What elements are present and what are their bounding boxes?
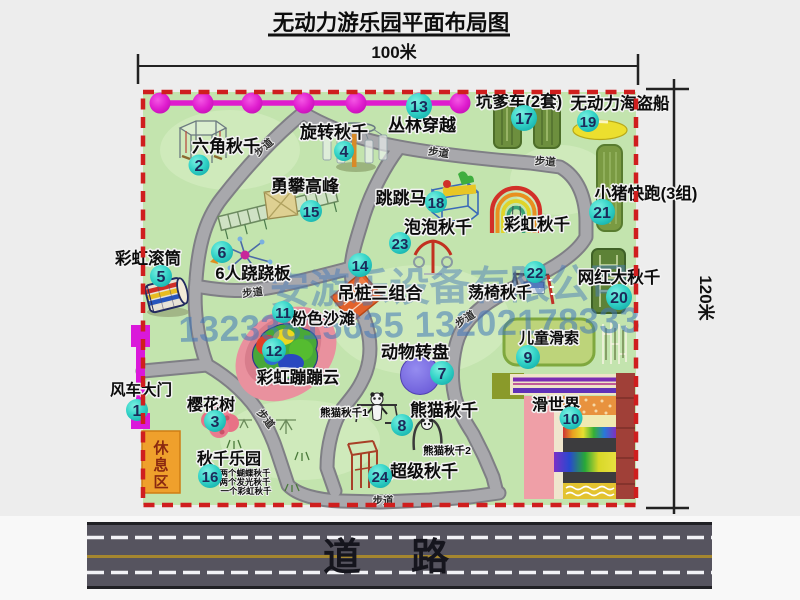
svg-text:彩虹滚筒: 彩虹滚筒 xyxy=(114,248,181,268)
svg-text:17: 17 xyxy=(515,111,533,128)
svg-text:彩虹秋千: 彩虹秋千 xyxy=(503,214,570,234)
svg-text:息: 息 xyxy=(153,456,168,474)
svg-text:18: 18 xyxy=(428,195,445,212)
svg-text:荡椅秋千: 荡椅秋千 xyxy=(468,283,532,302)
svg-text:19: 19 xyxy=(580,114,597,131)
svg-text:7: 7 xyxy=(438,366,447,383)
svg-text:23: 23 xyxy=(392,236,409,253)
svg-text:步道: 步道 xyxy=(534,154,556,168)
svg-text:休: 休 xyxy=(152,439,169,457)
svg-text:无动力游乐园平面布局图: 无动力游乐园平面布局图 xyxy=(273,10,510,35)
svg-text:超级秋千: 超级秋千 xyxy=(390,461,458,481)
svg-text:100米: 100米 xyxy=(371,42,417,62)
svg-text:粉色沙滩: 粉色沙滩 xyxy=(291,309,355,328)
svg-text:儿童滑索: 儿童滑索 xyxy=(518,329,579,347)
svg-text:泡泡秋千: 泡泡秋千 xyxy=(404,217,472,237)
svg-text:11: 11 xyxy=(275,305,291,322)
svg-text:一个彩虹秋千: 一个彩虹秋千 xyxy=(220,486,272,496)
svg-text:跳跳马: 跳跳马 xyxy=(376,188,427,208)
svg-text:小猪快跑(3组): 小猪快跑(3组) xyxy=(595,183,698,203)
svg-text:步道: 步道 xyxy=(242,285,265,300)
svg-text:13: 13 xyxy=(410,99,428,116)
svg-text:彩虹蹦蹦云: 彩虹蹦蹦云 xyxy=(256,367,340,387)
svg-text:9: 9 xyxy=(524,350,533,367)
svg-text:8: 8 xyxy=(398,418,407,435)
svg-text:熊猫秋千: 熊猫秋千 xyxy=(410,400,478,420)
svg-text:24: 24 xyxy=(372,469,389,486)
svg-text:22: 22 xyxy=(527,265,544,282)
svg-text:区: 区 xyxy=(153,474,168,491)
svg-text:15: 15 xyxy=(303,204,320,221)
svg-text:熊猫秋千2: 熊猫秋千2 xyxy=(423,444,471,457)
svg-text:14: 14 xyxy=(352,258,369,275)
svg-text:1: 1 xyxy=(133,403,142,420)
svg-text:12: 12 xyxy=(266,343,283,360)
svg-text:16: 16 xyxy=(202,469,219,486)
svg-text:4: 4 xyxy=(340,144,349,161)
svg-text:3: 3 xyxy=(211,414,220,431)
svg-text:道: 道 xyxy=(323,537,361,579)
svg-text:旋转秋千: 旋转秋千 xyxy=(299,122,368,142)
svg-text:120米: 120米 xyxy=(696,275,716,321)
svg-text:熊猫秋千1: 熊猫秋千1 xyxy=(320,406,368,419)
svg-text:10: 10 xyxy=(563,411,580,428)
svg-text:5: 5 xyxy=(157,269,166,286)
svg-text:2: 2 xyxy=(195,158,204,175)
svg-text:吊桩三组合: 吊桩三组合 xyxy=(338,283,424,303)
svg-text:6: 6 xyxy=(218,245,227,262)
svg-text:21: 21 xyxy=(593,205,611,222)
svg-text:勇攀高峰: 勇攀高峰 xyxy=(271,176,340,196)
svg-text:无动力海盗船: 无动力海盗船 xyxy=(570,93,671,113)
svg-text:路: 路 xyxy=(411,537,450,579)
svg-text:20: 20 xyxy=(610,290,628,307)
svg-text:6人跷跷板: 6人跷跷板 xyxy=(215,263,291,283)
svg-text:六角秋千: 六角秋千 xyxy=(192,136,260,156)
svg-text:动物转盘: 动物转盘 xyxy=(381,342,449,362)
